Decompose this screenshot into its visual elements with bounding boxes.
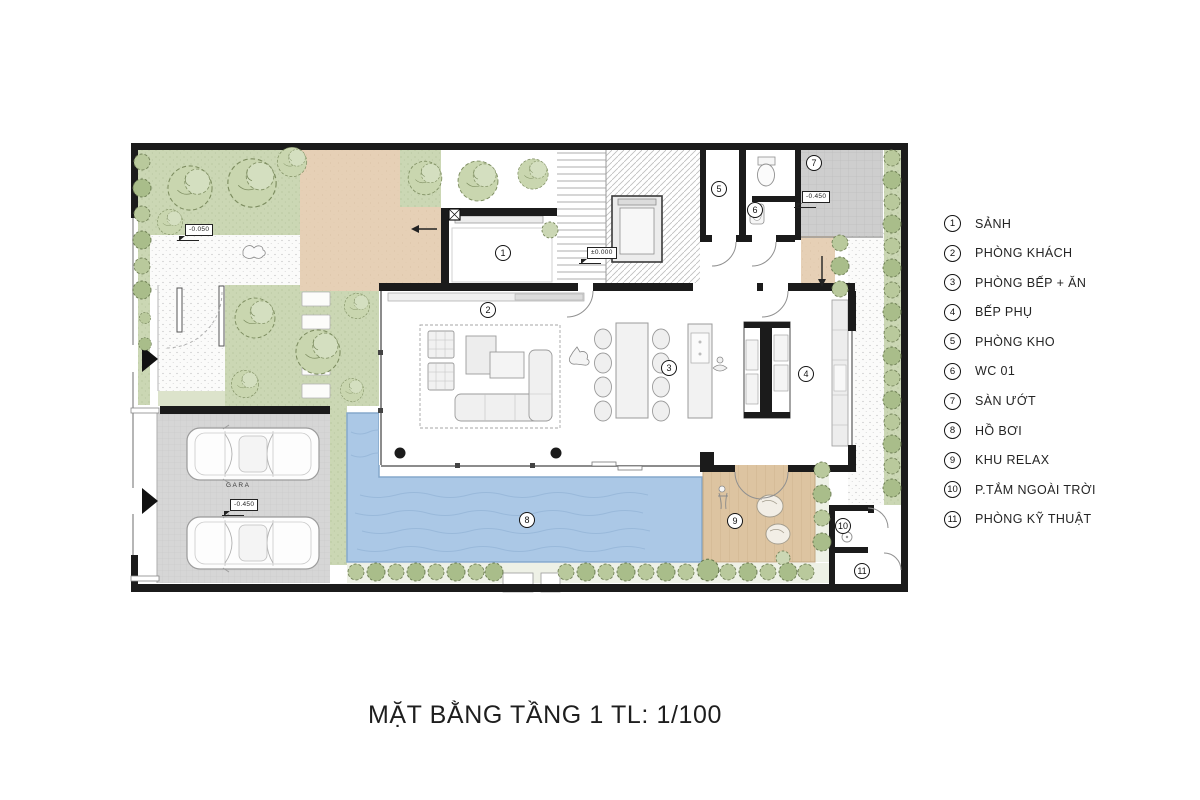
- elevation-marker-wet: -0.450: [802, 191, 830, 203]
- legend-number: 6: [944, 363, 961, 380]
- legend-number: 10: [944, 481, 961, 498]
- legend-item: 3PHÒNG BẾP + ĂN: [944, 274, 1096, 291]
- legend-item: 5PHÒNG KHO: [944, 333, 1096, 350]
- elevation-marker-main: ±0.000: [587, 247, 617, 259]
- legend-label: SẢNH: [975, 217, 1011, 231]
- elevation-marker-garden: -0.050: [185, 224, 213, 236]
- legend-number: 8: [944, 422, 961, 439]
- legend-number: 4: [944, 304, 961, 321]
- legend-item: 2PHÒNG KHÁCH: [944, 245, 1096, 262]
- legend-number: 1: [944, 215, 961, 232]
- floorplan-drawing: [130, 140, 910, 596]
- room-marker-10: 10: [835, 518, 851, 534]
- legend-number: 11: [944, 511, 961, 528]
- drawing-title: MẶT BẰNG TẦNG 1 TL: 1/100: [130, 701, 960, 730]
- room-marker-4: 4: [798, 366, 814, 382]
- legend-label: PHÒNG KỸ THUẬT: [975, 512, 1092, 526]
- legend-label: HỒ BƠI: [975, 424, 1022, 438]
- room-marker-11: 11: [854, 563, 870, 579]
- room-marker-6: 6: [747, 202, 763, 218]
- room-marker-8: 8: [519, 512, 535, 528]
- legend-number: 5: [944, 333, 961, 350]
- legend-label: PHÒNG KHO: [975, 335, 1055, 349]
- legend-item: 7SÀN ƯỚT: [944, 393, 1096, 410]
- legend-item: 6WC 01: [944, 363, 1096, 380]
- legend: 1SẢNH 2PHÒNG KHÁCH 3PHÒNG BẾP + ĂN 4BẾP …: [944, 215, 1096, 528]
- floor-plan: 1 2 3 4 5 6 7 8 9 10 11 -0.050 ±0.000 -0…: [130, 140, 910, 596]
- room-marker-9: 9: [727, 513, 743, 529]
- garage-label: GARA: [226, 482, 250, 489]
- legend-item: 10P.TẮM NGOÀI TRỜI: [944, 481, 1096, 498]
- legend-label: P.TẮM NGOÀI TRỜI: [975, 483, 1096, 497]
- legend-label: WC 01: [975, 364, 1015, 378]
- legend-number: 9: [944, 452, 961, 469]
- room-marker-2: 2: [480, 302, 496, 318]
- legend-item: 11PHÒNG KỸ THUẬT: [944, 511, 1096, 528]
- room-marker-3: 3: [661, 360, 677, 376]
- legend-item: 8HỒ BƠI: [944, 422, 1096, 439]
- legend-item: 9KHU RELAX: [944, 452, 1096, 469]
- legend-label: PHÒNG KHÁCH: [975, 246, 1072, 260]
- room-marker-5: 5: [711, 181, 727, 197]
- garage: [157, 413, 330, 583]
- legend-number: 7: [944, 393, 961, 410]
- legend-label: SÀN ƯỚT: [975, 394, 1036, 408]
- elevation-marker-garage: -0.450: [230, 499, 258, 511]
- legend-label: BẾP PHỤ: [975, 305, 1032, 319]
- legend-number: 2: [944, 245, 961, 262]
- room-marker-7: 7: [806, 155, 822, 171]
- legend-item: 4BẾP PHỤ: [944, 304, 1096, 321]
- legend-label: KHU RELAX: [975, 453, 1049, 467]
- legend-label: PHÒNG BẾP + ĂN: [975, 276, 1086, 290]
- floor-plan-page: 1 2 3 4 5 6 7 8 9 10 11 -0.050 ±0.000 -0…: [0, 0, 1200, 800]
- room-marker-1: 1: [495, 245, 511, 261]
- legend-item: 1SẢNH: [944, 215, 1096, 232]
- legend-number: 3: [944, 274, 961, 291]
